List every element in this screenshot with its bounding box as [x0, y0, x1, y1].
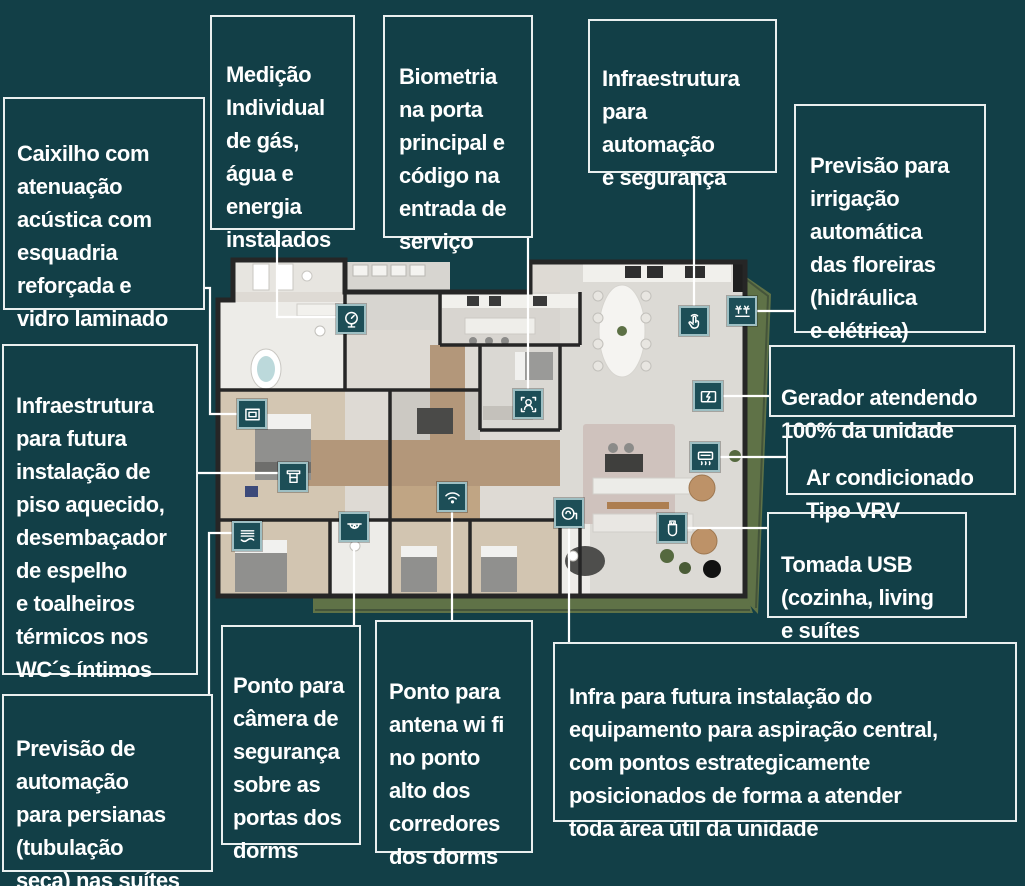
- callout-text: Caixilho com atenuação acústica com esqu…: [17, 141, 168, 331]
- callout-text: Infra para futura instalação do equipame…: [569, 684, 938, 841]
- utility-meter-icon: [336, 304, 366, 334]
- biometric-access-icon: [513, 389, 543, 419]
- callout-aspiracao: Infra para futura instalação do equipame…: [553, 642, 1017, 822]
- callout-gerador: Gerador atendendo 100% da unidade: [769, 345, 1015, 417]
- callout-text: Infraestrutura para futura instalação de…: [16, 393, 167, 682]
- generator-icon: [693, 381, 723, 411]
- acoustic-window-icon: [237, 399, 267, 429]
- callout-camera: Ponto para câmera de segurança sobre as …: [221, 625, 361, 845]
- callout-caixilho: Caixilho com atenuação acústica com esqu…: [3, 97, 205, 310]
- usb-outlet-icon: [657, 513, 687, 543]
- callout-text: Ponto para câmera de segurança sobre as …: [233, 673, 344, 863]
- callout-tomada-usb: Tomada USB (cozinha, living e suítes: [767, 512, 967, 618]
- irrigation-sprinkler-icon: [727, 296, 757, 326]
- callout-irrigacao: Previsão para irrigação automática das f…: [794, 104, 986, 333]
- callout-ar-condicionado: Ar condicionado Tipo VRV: [786, 425, 1016, 495]
- annotated-floorplan-infographic: Caixilho com atenuação acústica com esqu…: [0, 0, 1025, 886]
- vrv-air-conditioning-icon: [690, 442, 720, 472]
- callout-text: Previsão para irrigação automática das f…: [810, 153, 949, 343]
- callout-piso-aquecido: Infraestrutura para futura instalação de…: [2, 344, 198, 675]
- callout-text: Medição Individual de gás, água e energi…: [226, 62, 331, 252]
- heated-towel-rail-icon: [278, 462, 308, 492]
- home-automation-touch-icon: [679, 306, 709, 336]
- security-camera-icon: [339, 512, 369, 542]
- callout-automacao: Infraestrutura para automação e seguranç…: [588, 19, 777, 173]
- callout-text: Ponto para antena wi fi no ponto alto do…: [389, 679, 504, 869]
- callout-persianas: Previsão de automação para persianas (tu…: [2, 694, 213, 872]
- central-vacuum-icon: [554, 498, 584, 528]
- callout-text: Tomada USB (cozinha, living e suítes: [781, 552, 934, 643]
- wifi-antenna-icon: [437, 482, 467, 512]
- callout-medicao: Medição Individual de gás, água e energi…: [210, 15, 355, 230]
- callout-text: Infraestrutura para automação e seguranç…: [602, 66, 739, 190]
- callout-text: Biometria na porta principal e código na…: [399, 64, 506, 254]
- motorized-blinds-icon: [232, 521, 262, 551]
- callout-text: Previsão de automação para persianas (tu…: [16, 736, 180, 886]
- callout-wifi: Ponto para antena wi fi no ponto alto do…: [375, 620, 533, 853]
- callout-biometria: Biometria na porta principal e código na…: [383, 15, 533, 238]
